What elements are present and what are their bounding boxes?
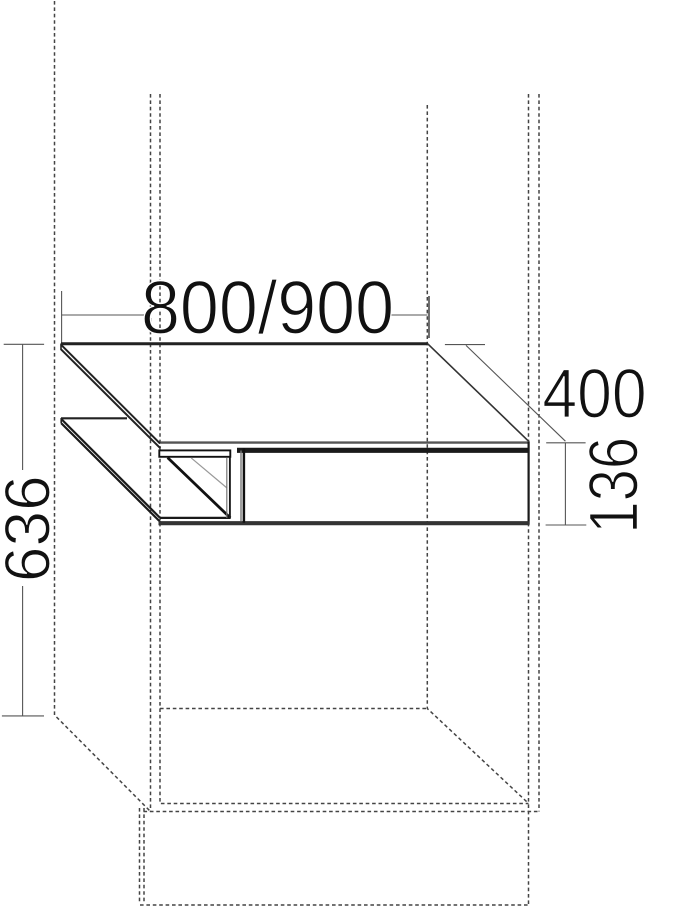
svg-text:136: 136 <box>574 437 652 534</box>
svg-text:400: 400 <box>542 354 646 432</box>
svg-text:800/900: 800/900 <box>141 266 394 350</box>
svg-text:636: 636 <box>0 475 63 582</box>
